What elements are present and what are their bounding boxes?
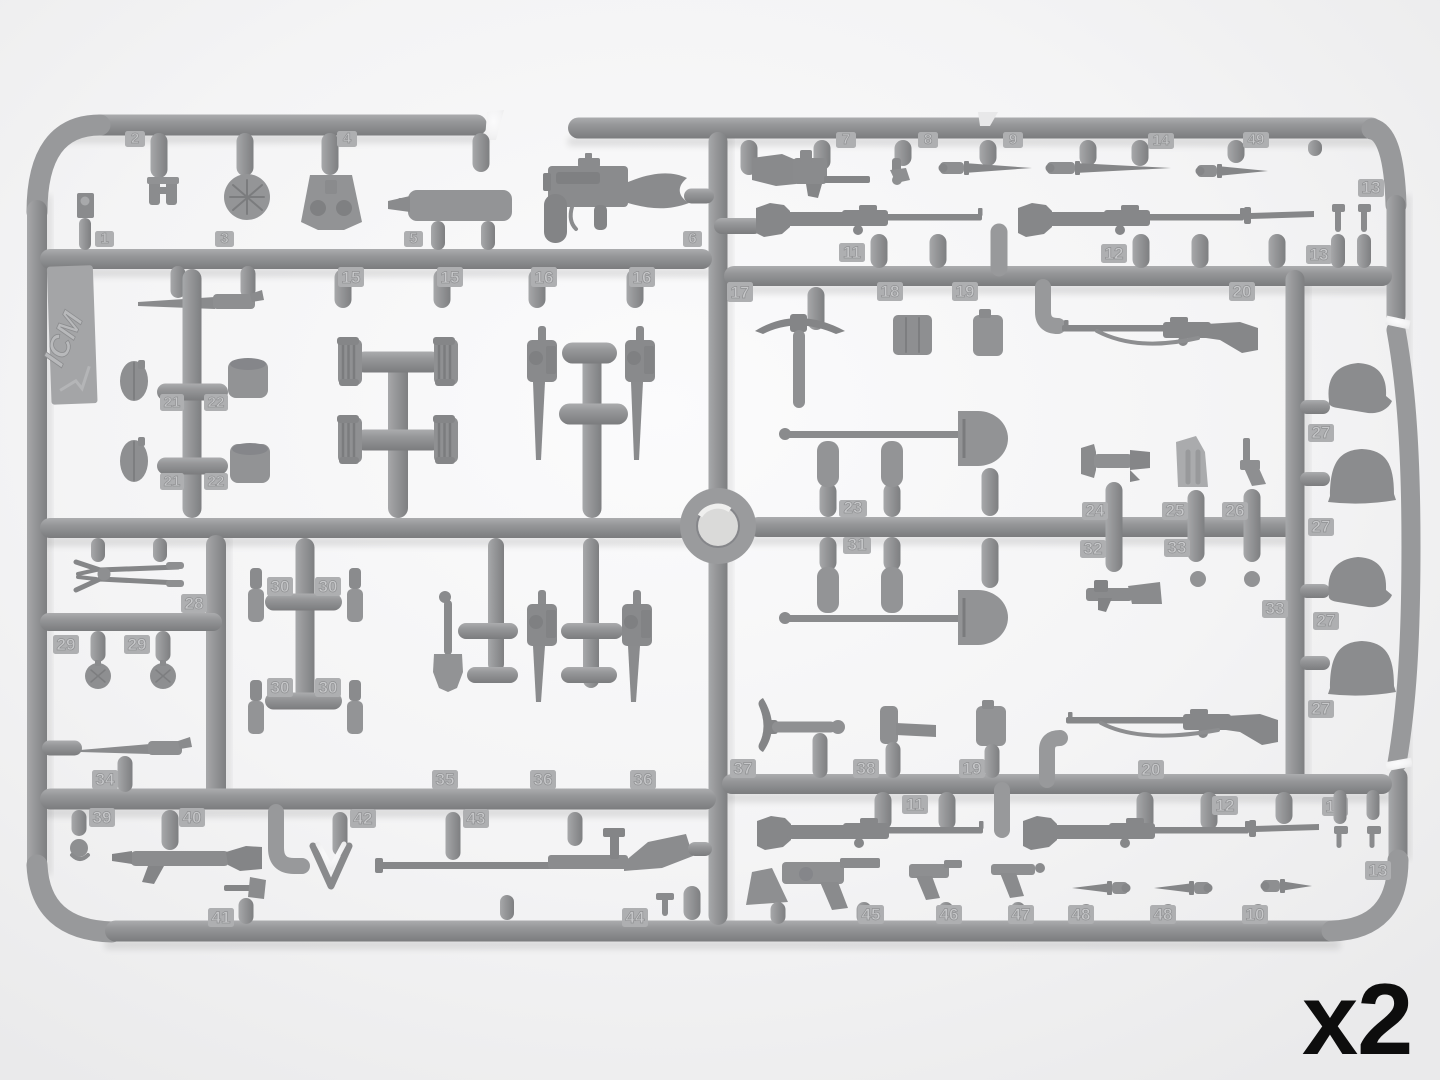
svg-text:27: 27	[1312, 699, 1331, 718]
svg-text:11: 11	[843, 243, 861, 262]
svg-text:13: 13	[1362, 178, 1381, 197]
svg-text:15: 15	[342, 268, 361, 287]
svg-text:12: 12	[1105, 244, 1124, 263]
svg-text:21: 21	[164, 473, 181, 490]
svg-text:20: 20	[1233, 282, 1252, 301]
svg-text:19: 19	[956, 282, 975, 301]
svg-text:40: 40	[183, 808, 202, 827]
svg-text:8: 8	[924, 131, 932, 148]
svg-text:32: 32	[1084, 539, 1103, 558]
svg-text:47: 47	[1012, 905, 1031, 924]
svg-text:29: 29	[128, 635, 147, 654]
svg-text:25: 25	[1166, 501, 1185, 520]
svg-text:36: 36	[534, 770, 553, 789]
svg-text:30: 30	[271, 577, 290, 596]
svg-text:26: 26	[1226, 501, 1245, 520]
svg-text:19: 19	[963, 759, 982, 778]
svg-text:29: 29	[57, 635, 76, 654]
svg-text:6: 6	[688, 230, 696, 247]
svg-text:30: 30	[319, 678, 338, 697]
svg-text:37: 37	[734, 759, 753, 778]
svg-text:23: 23	[844, 498, 863, 517]
svg-text:36: 36	[634, 770, 653, 789]
svg-text:16: 16	[633, 268, 652, 287]
svg-text:5: 5	[409, 230, 417, 247]
svg-text:44: 44	[626, 908, 645, 927]
svg-text:49: 49	[1248, 131, 1265, 148]
svg-text:22: 22	[208, 473, 225, 490]
svg-text:9: 9	[1009, 131, 1017, 148]
svg-text:46: 46	[940, 905, 959, 924]
svg-text:7: 7	[842, 131, 850, 148]
svg-text:27: 27	[1312, 517, 1331, 536]
svg-text:48: 48	[1072, 905, 1091, 924]
svg-text:16: 16	[535, 268, 554, 287]
svg-text:33: 33	[1266, 599, 1285, 618]
svg-text:27: 27	[1317, 611, 1336, 630]
svg-text:20: 20	[1142, 760, 1161, 779]
svg-text:28: 28	[185, 594, 204, 613]
svg-text:15: 15	[441, 268, 460, 287]
svg-text:10: 10	[1246, 905, 1265, 924]
svg-text:3: 3	[220, 230, 228, 247]
svg-text:17: 17	[731, 283, 750, 302]
svg-text:14: 14	[1153, 132, 1170, 149]
svg-text:42: 42	[354, 809, 373, 828]
svg-text:33: 33	[1168, 538, 1187, 557]
svg-text:48: 48	[1154, 905, 1173, 924]
svg-text:35: 35	[436, 770, 455, 789]
svg-text:30: 30	[271, 678, 290, 697]
svg-text:21: 21	[164, 394, 181, 411]
svg-text:18: 18	[881, 282, 900, 301]
svg-text:38: 38	[857, 759, 876, 778]
svg-text:41: 41	[212, 908, 231, 927]
svg-text:2: 2	[131, 130, 139, 147]
svg-text:4: 4	[343, 130, 352, 147]
svg-text:11: 11	[906, 795, 924, 814]
svg-text:1: 1	[100, 230, 108, 247]
svg-text:43: 43	[467, 809, 486, 828]
svg-text:34: 34	[96, 770, 115, 789]
svg-text:13: 13	[1369, 861, 1388, 880]
svg-text:x2: x2	[1302, 964, 1412, 1076]
svg-text:22: 22	[208, 394, 225, 411]
svg-text:39: 39	[93, 808, 112, 827]
svg-text:30: 30	[319, 577, 338, 596]
svg-text:13: 13	[1310, 245, 1329, 264]
svg-text:12: 12	[1216, 796, 1235, 815]
svg-text:27: 27	[1312, 423, 1331, 442]
svg-text:45: 45	[862, 905, 881, 924]
svg-text:31: 31	[848, 535, 867, 554]
svg-text:24: 24	[1086, 501, 1105, 520]
